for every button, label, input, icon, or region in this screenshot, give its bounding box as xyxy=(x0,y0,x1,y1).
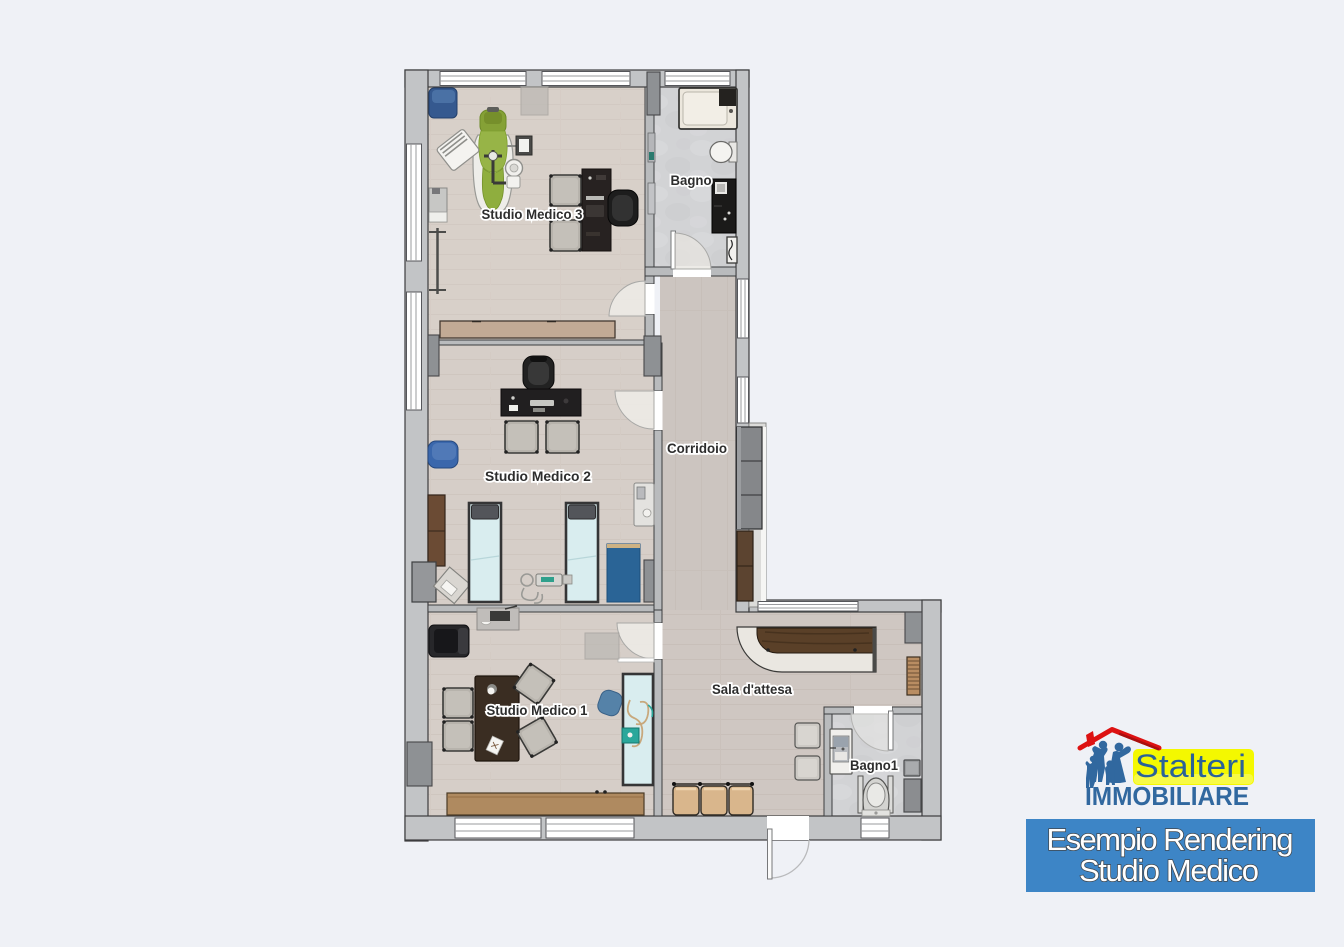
svg-text:Studio Medico: Studio Medico xyxy=(1079,853,1259,888)
svg-text:Stalteri: Stalteri xyxy=(1135,748,1246,784)
svg-text:Corridoio: Corridoio xyxy=(667,441,727,456)
svg-text:IMMOBILIARE: IMMOBILIARE xyxy=(1085,781,1249,811)
svg-text:Bagno: Bagno xyxy=(671,173,712,188)
svg-text:Studio Medico 2: Studio Medico 2 xyxy=(485,469,591,484)
svg-text:Studio Medico 3: Studio Medico 3 xyxy=(482,207,583,222)
svg-text:Studio Medico 1: Studio Medico 1 xyxy=(487,703,588,718)
svg-text:Bagno1: Bagno1 xyxy=(850,758,898,773)
svg-text:Esempio Rendering: Esempio Rendering xyxy=(1047,822,1294,857)
svg-text:Sala d'attesa: Sala d'attesa xyxy=(712,682,792,697)
